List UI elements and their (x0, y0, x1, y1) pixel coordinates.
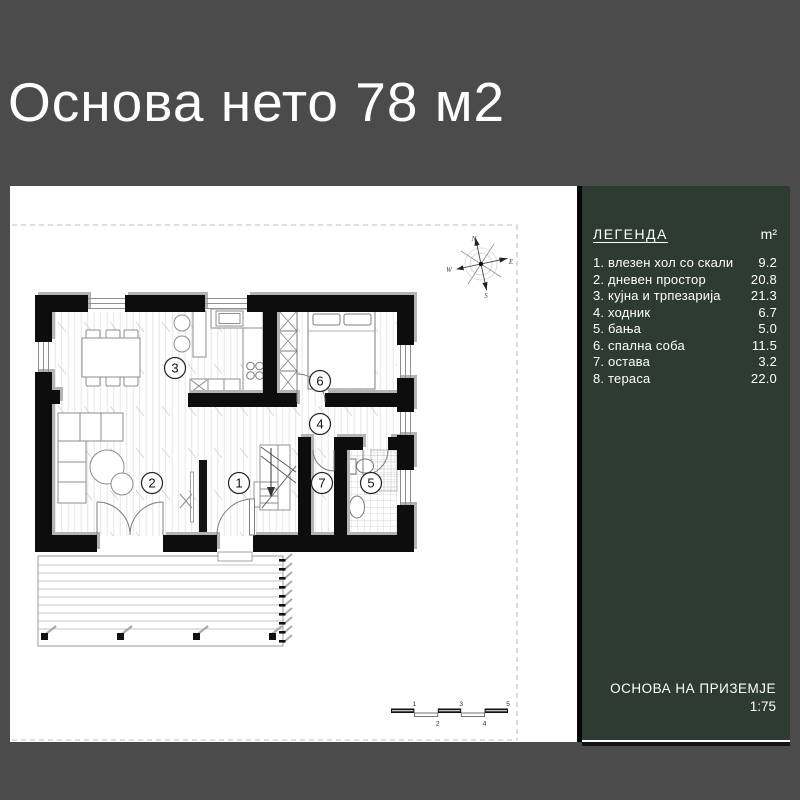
svg-text:1: 1 (235, 476, 242, 491)
legend-item: 2. дневен простор 20.8 (593, 272, 777, 289)
legend-item-label: 5. бања (593, 321, 641, 338)
legend-item-value: 21.3 (751, 288, 777, 305)
sheet-footer-title: ОСНОВА НА ПРИЗЕМЈЕ (610, 680, 776, 698)
svg-text:5: 5 (506, 701, 510, 708)
room-label-2: 2 (142, 473, 163, 494)
legend-item: 1. влезен хол со скали 9.2 (593, 255, 777, 272)
legend-item-label: 2. дневен простор (593, 272, 706, 289)
room-label-7: 7 (312, 473, 333, 494)
dining-furniture (82, 330, 140, 386)
legend-item-value: 5.0 (758, 321, 777, 338)
legend-item-label: 4. ходник (593, 305, 650, 322)
legend-unit-label: m² (761, 226, 777, 242)
legend-item-value: 20.8 (751, 272, 777, 289)
legend-item-value: 6.7 (758, 305, 777, 322)
floor-plan-drawing: N E W S (10, 186, 577, 742)
svg-text:4: 4 (316, 417, 323, 432)
legend-item-value: 11.5 (752, 338, 777, 355)
legend-item: 8. тераса 22.0 (593, 371, 777, 388)
compass-s: S (484, 292, 488, 300)
entry-step (218, 552, 252, 561)
svg-text:1: 1 (413, 701, 417, 708)
legend-item-label: 7. остава (593, 354, 650, 371)
room-label-5: 5 (361, 473, 382, 494)
compass-n: N (471, 235, 477, 243)
svg-text:7: 7 (318, 476, 325, 491)
legend-item-value: 3.2 (758, 354, 777, 371)
compass-w: W (446, 266, 453, 274)
page-title: Основа нето 78 м2 (8, 70, 505, 134)
stairs (254, 445, 296, 510)
legend-item: 6. спална соба 11.5 (593, 338, 777, 355)
room-label-4: 4 (310, 414, 331, 435)
legend-item-value: 22.0 (751, 371, 777, 388)
legend-item-value: 9.2 (758, 255, 777, 272)
svg-text:3: 3 (459, 701, 463, 708)
svg-text:2: 2 (436, 721, 440, 728)
legend-item-label: 3. кујна и трпезарија (593, 288, 721, 305)
legend-item: 5. бања 5.0 (593, 321, 777, 338)
legend-panel: ЛЕГЕНДА m² 1. влезен хол со скали 9.2 2.… (582, 186, 790, 742)
room-label-1: 1 (229, 473, 250, 494)
legend-title: ЛЕГЕНДА (593, 226, 668, 242)
legend-item: 3. кујна и трпезарија 21.3 (593, 288, 777, 305)
legend-item-label: 8. тераса (593, 371, 650, 388)
legend-item: 7. остава 3.2 (593, 354, 777, 371)
scale-bar: 1 2 3 4 5 (391, 701, 510, 728)
svg-text:4: 4 (483, 721, 487, 728)
room-label-6: 6 (310, 371, 331, 392)
legend-item-label: 6. спална соба (593, 338, 685, 355)
drawing-sheet: N E W S (10, 186, 577, 742)
svg-text:6: 6 (316, 374, 323, 389)
svg-text:5: 5 (367, 476, 374, 491)
legend-item-label: 1. влезен хол со скали (593, 255, 733, 272)
poster-page: { "header": { "title": "Основа нето 78 м… (0, 0, 800, 800)
sheet-footer-scale: 1:75 (610, 698, 776, 716)
legend-item: 4. ходник 6.7 (593, 305, 777, 322)
terrace (38, 554, 292, 646)
compass-rose: N E W S (446, 232, 514, 300)
sheet-footer: ОСНОВА НА ПРИЗЕМЈЕ 1:75 (610, 680, 776, 716)
room-label-3: 3 (165, 358, 186, 379)
svg-text:3: 3 (171, 361, 178, 376)
compass-e: E (508, 258, 514, 266)
svg-text:2: 2 (148, 476, 155, 491)
